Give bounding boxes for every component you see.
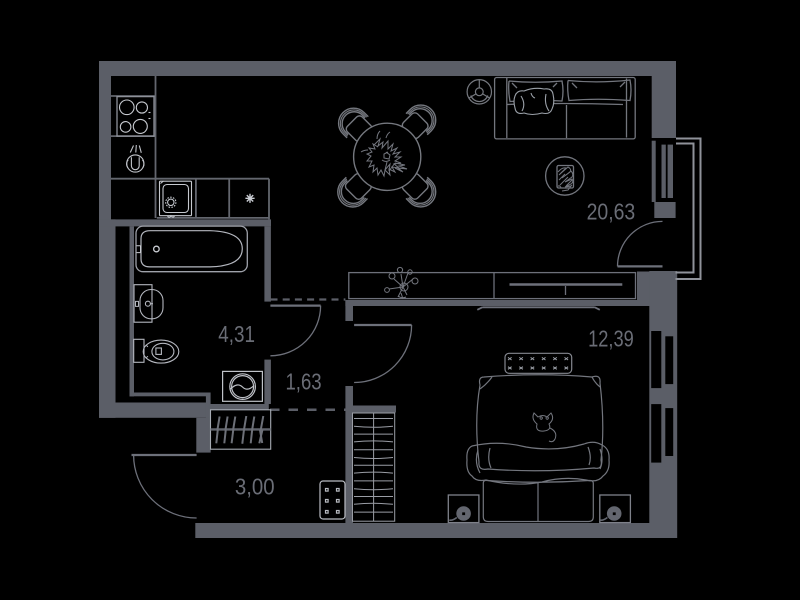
svg-text:4,31: 4,31 <box>218 322 255 347</box>
svg-text:20,63: 20,63 <box>587 199 636 225</box>
svg-text:12,39: 12,39 <box>588 326 634 351</box>
svg-text:1,63: 1,63 <box>286 370 322 395</box>
svg-text:3,00: 3,00 <box>235 473 275 499</box>
